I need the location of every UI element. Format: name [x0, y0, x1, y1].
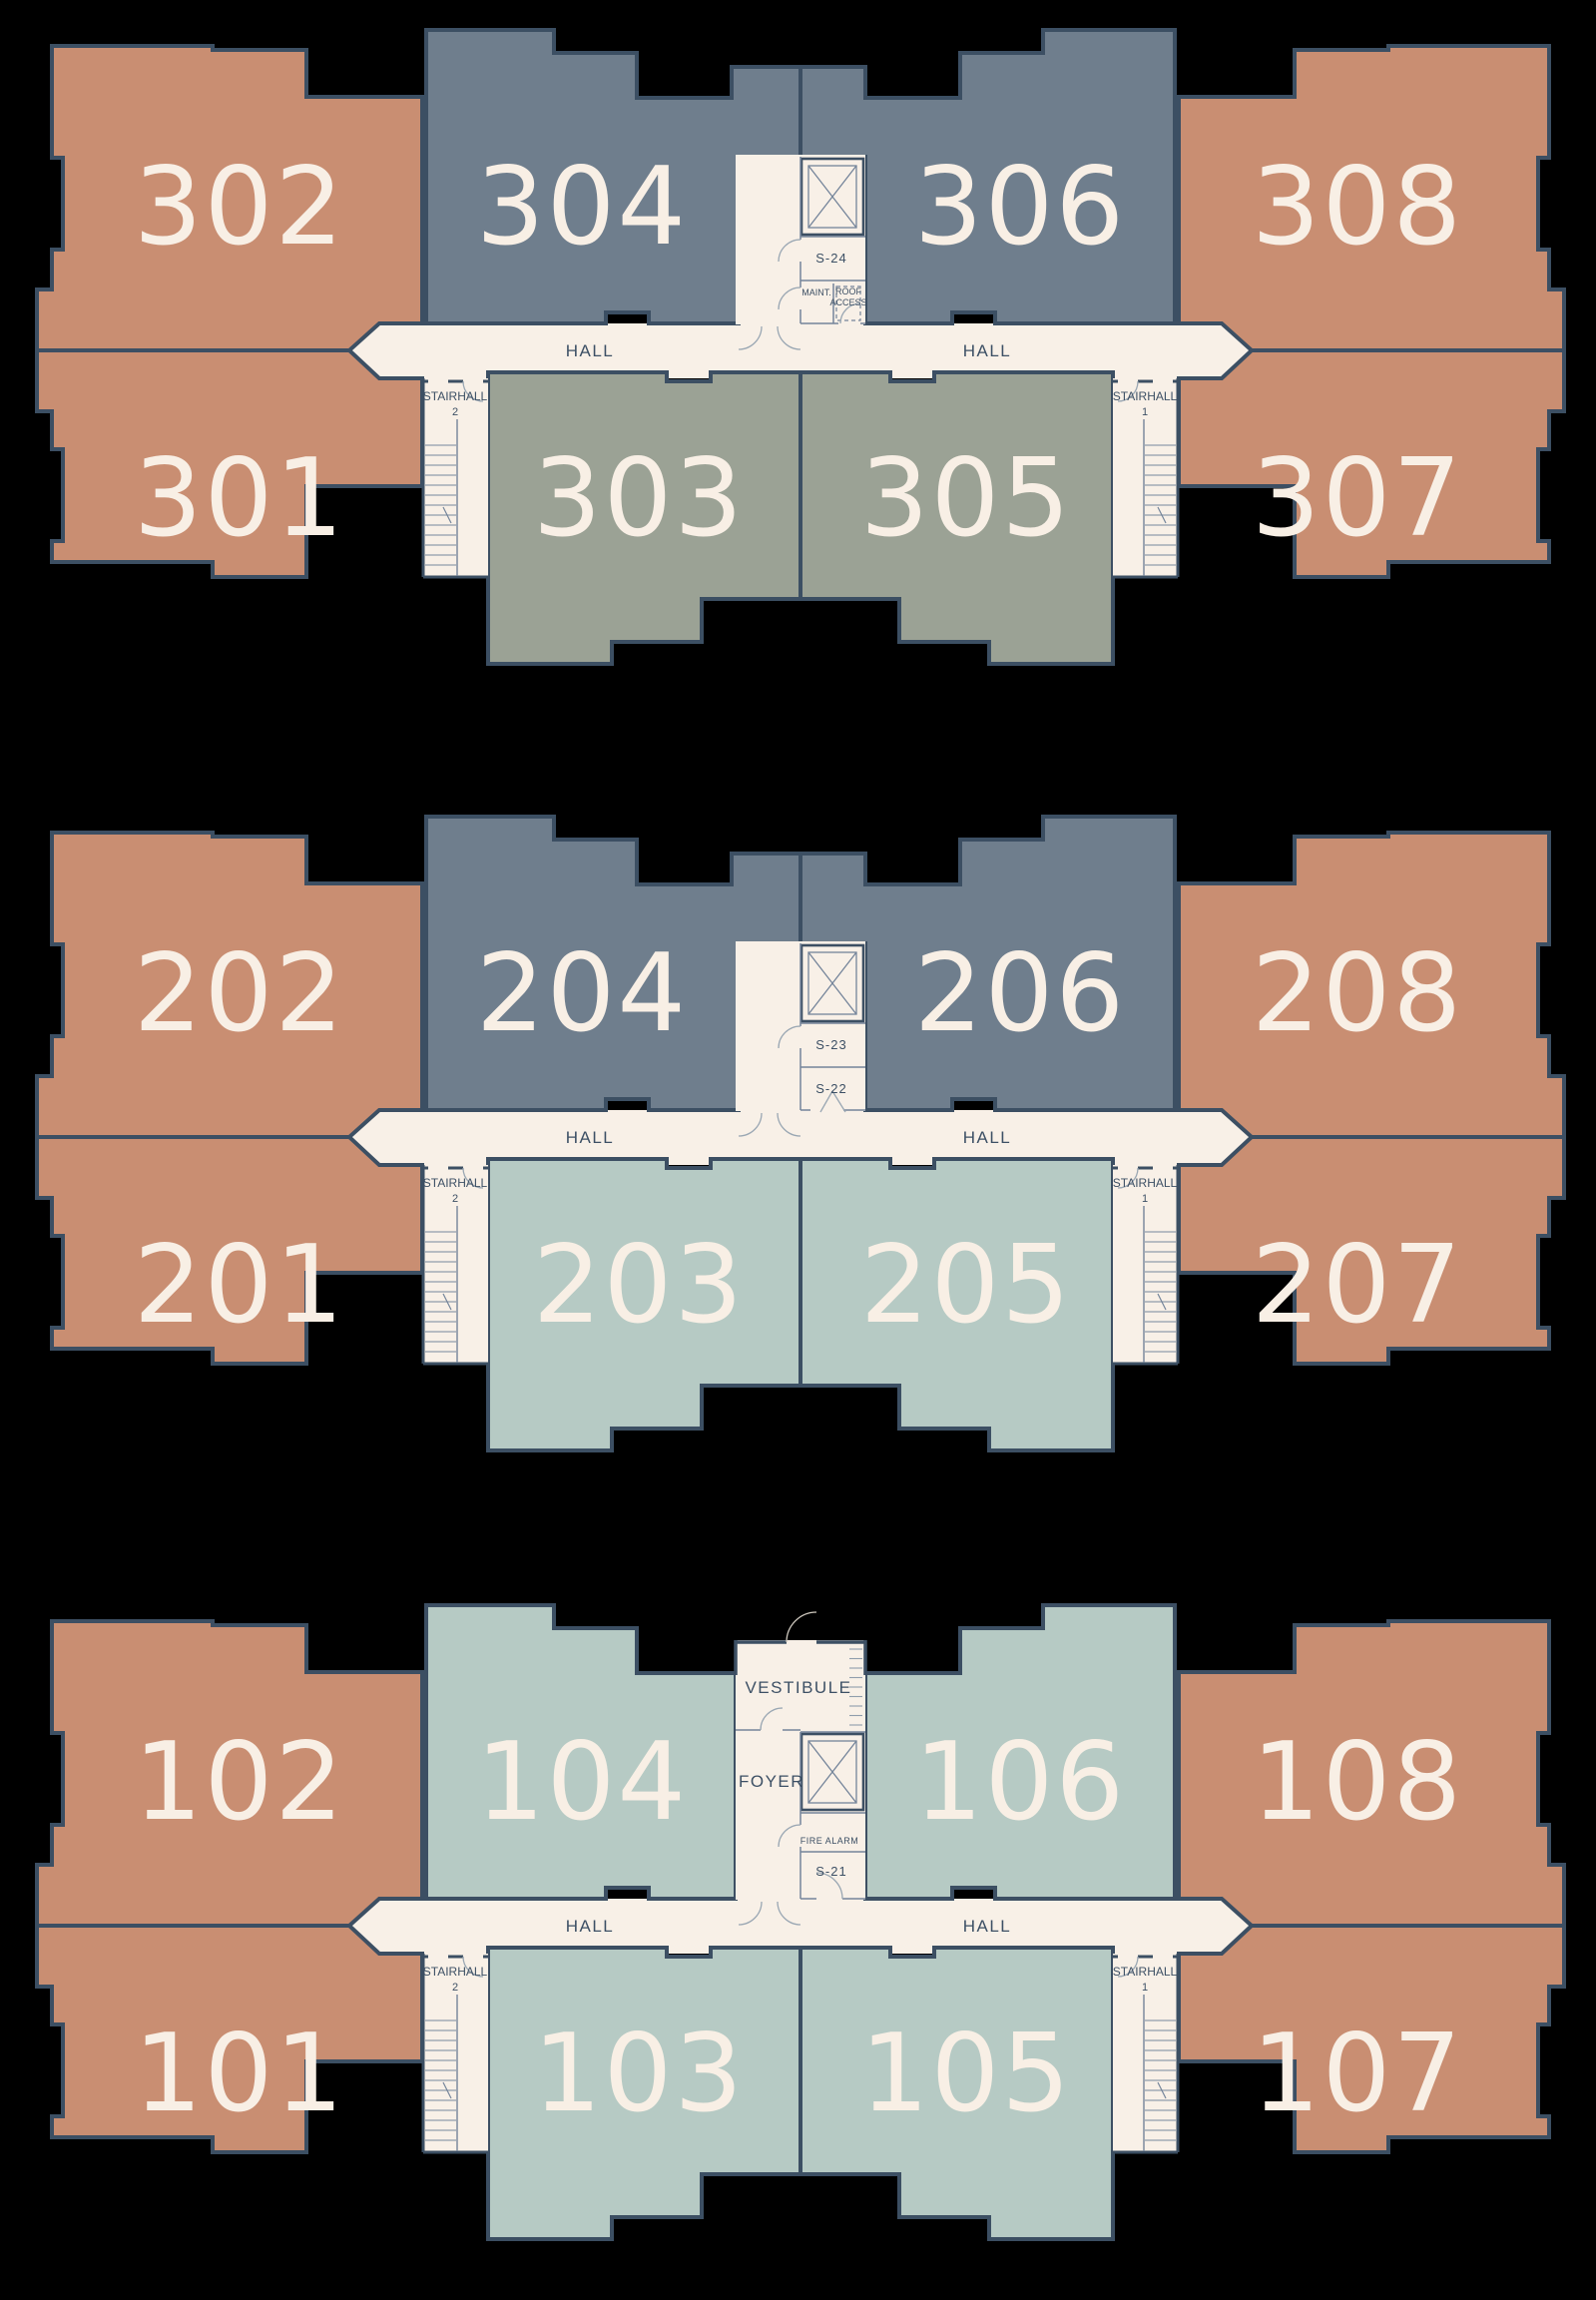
stairhall-label: STAIRHALL — [1113, 1965, 1178, 1979]
unit-106-label: 106 — [914, 1720, 1126, 1845]
floor-plan-sheet: S-24MAINT.ROOFACCESSSTAIRHALL2STAIRHALL1… — [0, 0, 1596, 2300]
unit-302-label: 302 — [134, 145, 345, 270]
hall-label-left: HALL — [566, 1128, 615, 1147]
stairhall-number: 1 — [1142, 1193, 1148, 1205]
stairhall-label: STAIRHALL — [423, 1965, 488, 1979]
floor-3-plan: S-24MAINT.ROOFACCESSSTAIRHALL2STAIRHALL1… — [0, 0, 1596, 699]
stairhall-number: 2 — [452, 1193, 458, 1205]
stairhall-label: STAIRHALL — [1113, 389, 1178, 403]
unit-102-label: 102 — [134, 1720, 345, 1845]
unit-105-label: 105 — [860, 2012, 1072, 2136]
unit-205-label: 205 — [860, 1223, 1072, 1348]
stairhall-label: STAIRHALL — [1113, 1176, 1178, 1190]
roof-access-label-2: ACCESS — [829, 297, 866, 307]
unit-303-label: 303 — [533, 436, 745, 561]
core-floor3: S-24MAINT.ROOFACCESS — [736, 155, 867, 349]
stairhall-right: STAIRHALL1 — [1113, 1165, 1178, 1364]
maint-label: MAINT. — [801, 287, 831, 297]
floor-2-plan: S-23S-22STAIRHALL2STAIRHALL1HALLHALL2022… — [0, 787, 1596, 1485]
unit-201-label: 201 — [134, 1223, 345, 1348]
unit-308-label: 308 — [1252, 145, 1463, 270]
entry-door-arc — [787, 1612, 816, 1642]
stairhall-number: 2 — [452, 406, 458, 418]
unit-108-label: 108 — [1252, 1720, 1463, 1845]
roof-access-label-1: ROOF — [835, 287, 862, 296]
stair-room-label: S-21 — [815, 1864, 846, 1879]
unit-304-label: 304 — [476, 145, 688, 270]
unit-203-label: 203 — [533, 1223, 745, 1348]
hall-floor — [349, 323, 1252, 378]
stairhall-right: STAIRHALL1 — [1113, 378, 1178, 577]
hall-label-right: HALL — [963, 1128, 1012, 1147]
unit-305-label: 305 — [860, 436, 1072, 561]
unit-307-label: 307 — [1252, 436, 1463, 561]
stairhall-left: STAIRHALL2 — [423, 1165, 488, 1364]
hall-label-right: HALL — [963, 1917, 1012, 1936]
fire-alarm-label: FIRE ALARM — [800, 1836, 859, 1846]
unit-101-label: 101 — [134, 2012, 345, 2136]
stairhall-number: 1 — [1142, 1982, 1148, 1994]
unit-107-label: 107 — [1252, 2012, 1463, 2136]
hall-label-left: HALL — [566, 341, 615, 360]
floor-plan-drawing: VESTIBULEFOYERFIRE ALARMS-21STAIRHALL2ST… — [0, 1575, 1596, 2274]
unit-202-label: 202 — [134, 931, 345, 1056]
foyer-label: FOYER — [739, 1772, 804, 1791]
vestibule-label: VESTIBULE — [745, 1678, 851, 1697]
unit-204-label: 204 — [476, 931, 688, 1056]
stairhall-left: STAIRHALL2 — [423, 378, 488, 577]
hall-floor — [349, 1110, 1252, 1165]
elevator-shaft — [801, 1734, 863, 1810]
hall-label-left: HALL — [566, 1917, 615, 1936]
unit-208-label: 208 — [1252, 931, 1463, 1056]
stair-room-label: S-23 — [815, 1037, 846, 1052]
floor-plan-drawing: S-24MAINT.ROOFACCESSSTAIRHALL2STAIRHALL1… — [0, 0, 1596, 699]
stairhall-label: STAIRHALL — [423, 389, 488, 403]
hall-label-right: HALL — [963, 341, 1012, 360]
hall-floor — [349, 1899, 1252, 1954]
stair-room-label: S-24 — [815, 251, 846, 266]
floor-plan-drawing: S-23S-22STAIRHALL2STAIRHALL1HALLHALL2022… — [0, 787, 1596, 1485]
stairhall-label: STAIRHALL — [423, 1176, 488, 1190]
unit-301-label: 301 — [134, 436, 345, 561]
unit-104-label: 104 — [476, 1720, 688, 1845]
elevator-shaft — [801, 945, 863, 1021]
unit-103-label: 103 — [533, 2012, 745, 2136]
elevator-shaft — [801, 159, 863, 235]
core-floor1: VESTIBULEFOYERFIRE ALARMS-21 — [736, 1612, 865, 1925]
floor-1-plan: VESTIBULEFOYERFIRE ALARMS-21STAIRHALL2ST… — [0, 1575, 1596, 2274]
stairhall-left: STAIRHALL2 — [423, 1954, 488, 2152]
unit-306-label: 306 — [914, 145, 1126, 270]
stair-room-2-label: S-22 — [815, 1081, 846, 1096]
unit-207-label: 207 — [1252, 1223, 1463, 1348]
stairhall-number: 1 — [1142, 406, 1148, 418]
core-floor2: S-23S-22 — [736, 941, 865, 1136]
stairhall-right: STAIRHALL1 — [1113, 1954, 1178, 2152]
stairhall-number: 2 — [452, 1982, 458, 1994]
unit-206-label: 206 — [914, 931, 1126, 1056]
